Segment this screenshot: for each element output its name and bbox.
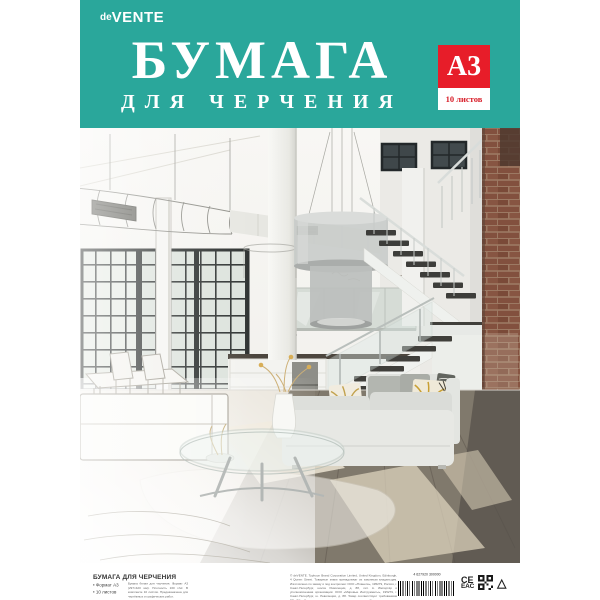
sketch-fade-overlay [80,128,255,563]
barcode: 4 627920 300000 [398,573,456,596]
qr-code-icon [478,575,493,590]
devente-logo: deVENTE [100,10,164,26]
sheet-count-label: 10 листов [438,88,490,110]
logo-name: VENTE [112,9,165,26]
product-subtitle: ДЛЯ ЧЕРЧЕНИЯ [92,92,432,112]
header-band: deVENTE БУМАГА ДЛЯ ЧЕРЧЕНИЯ А3 10 листов [80,0,520,128]
ce-eac-mark: CE EAC [461,576,474,590]
format-label: А3 [438,45,490,88]
certification-marks: CE EAC △ [461,575,506,590]
paper-package: deVENTE БУМАГА ДЛЯ ЧЕРЧЕНИЯ А3 10 листов [80,0,520,600]
legal-fineprint: © deVENTE. Typhoon Brand Corporation Lim… [290,574,397,600]
packaging-photo: deVENTE БУМАГА ДЛЯ ЧЕРЧЕНИЯ А3 10 листов [0,0,600,600]
loft-interior-illustration [80,128,520,563]
info-strip: БУМАГА ДЛЯ ЧЕРЧЕНИЯ • Формат А3 • 10 лис… [80,563,520,600]
product-details-fineprint: Бумага белая для черчения. Формат А3 (29… [128,582,188,599]
recycling-triangle-icon: △ [497,577,506,589]
eac-mark-icon: EAC [461,584,474,590]
barcode-bars [398,581,454,596]
format-badge: А3 10 листов [438,45,490,110]
barcode-number: 4 627920 300000 [398,573,456,577]
product-title: БУМАГА [92,33,432,87]
footer-product-title: БУМАГА ДЛЯ ЧЕРЧЕНИЯ [93,573,176,581]
logo-prefix: de [100,12,112,23]
loft-scene-svg [80,128,520,563]
